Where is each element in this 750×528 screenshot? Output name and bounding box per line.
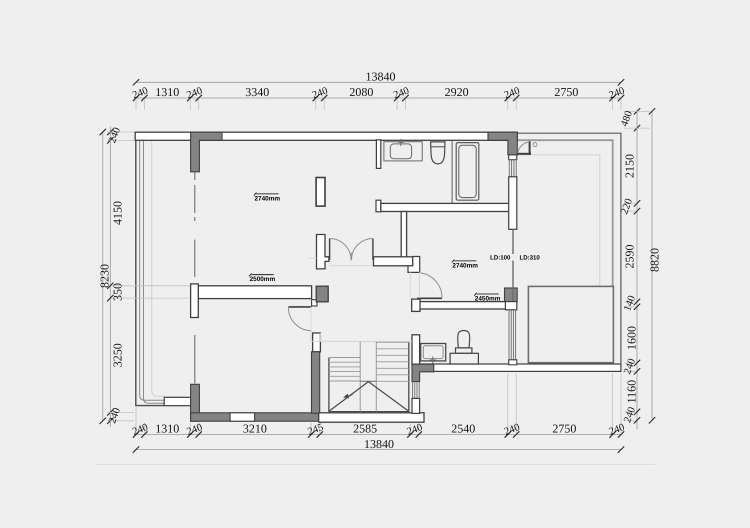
svg-text:2740mm: 2740mm — [452, 262, 478, 269]
svg-text:8230: 8230 — [98, 264, 112, 288]
svg-text:3250: 3250 — [111, 343, 125, 367]
svg-text:2740mm: 2740mm — [255, 195, 281, 202]
svg-text:2920: 2920 — [445, 85, 469, 99]
svg-text:1310: 1310 — [155, 85, 179, 99]
svg-text:2590: 2590 — [623, 245, 637, 269]
svg-text:13840: 13840 — [364, 437, 394, 451]
svg-text:2750: 2750 — [554, 85, 578, 99]
svg-text:1600: 1600 — [625, 326, 639, 350]
svg-text:1310: 1310 — [155, 422, 179, 436]
svg-text:2500mm: 2500mm — [250, 276, 276, 283]
svg-text:8820: 8820 — [648, 248, 662, 272]
svg-text:2540: 2540 — [451, 422, 475, 436]
svg-text:2080: 2080 — [349, 85, 373, 99]
svg-text:2585: 2585 — [353, 422, 377, 436]
svg-text:350: 350 — [111, 283, 125, 301]
svg-text:2150: 2150 — [623, 154, 637, 178]
svg-text:2750: 2750 — [552, 422, 576, 436]
svg-text:2450mm: 2450mm — [475, 295, 501, 302]
svg-text:LD:100: LD:100 — [490, 255, 511, 262]
svg-text:3340: 3340 — [245, 85, 269, 99]
svg-text:LD:310: LD:310 — [520, 255, 541, 262]
svg-text:13840: 13840 — [366, 70, 396, 84]
svg-text:4150: 4150 — [111, 201, 125, 225]
svg-text:1160: 1160 — [625, 380, 639, 404]
svg-text:3210: 3210 — [243, 422, 267, 436]
